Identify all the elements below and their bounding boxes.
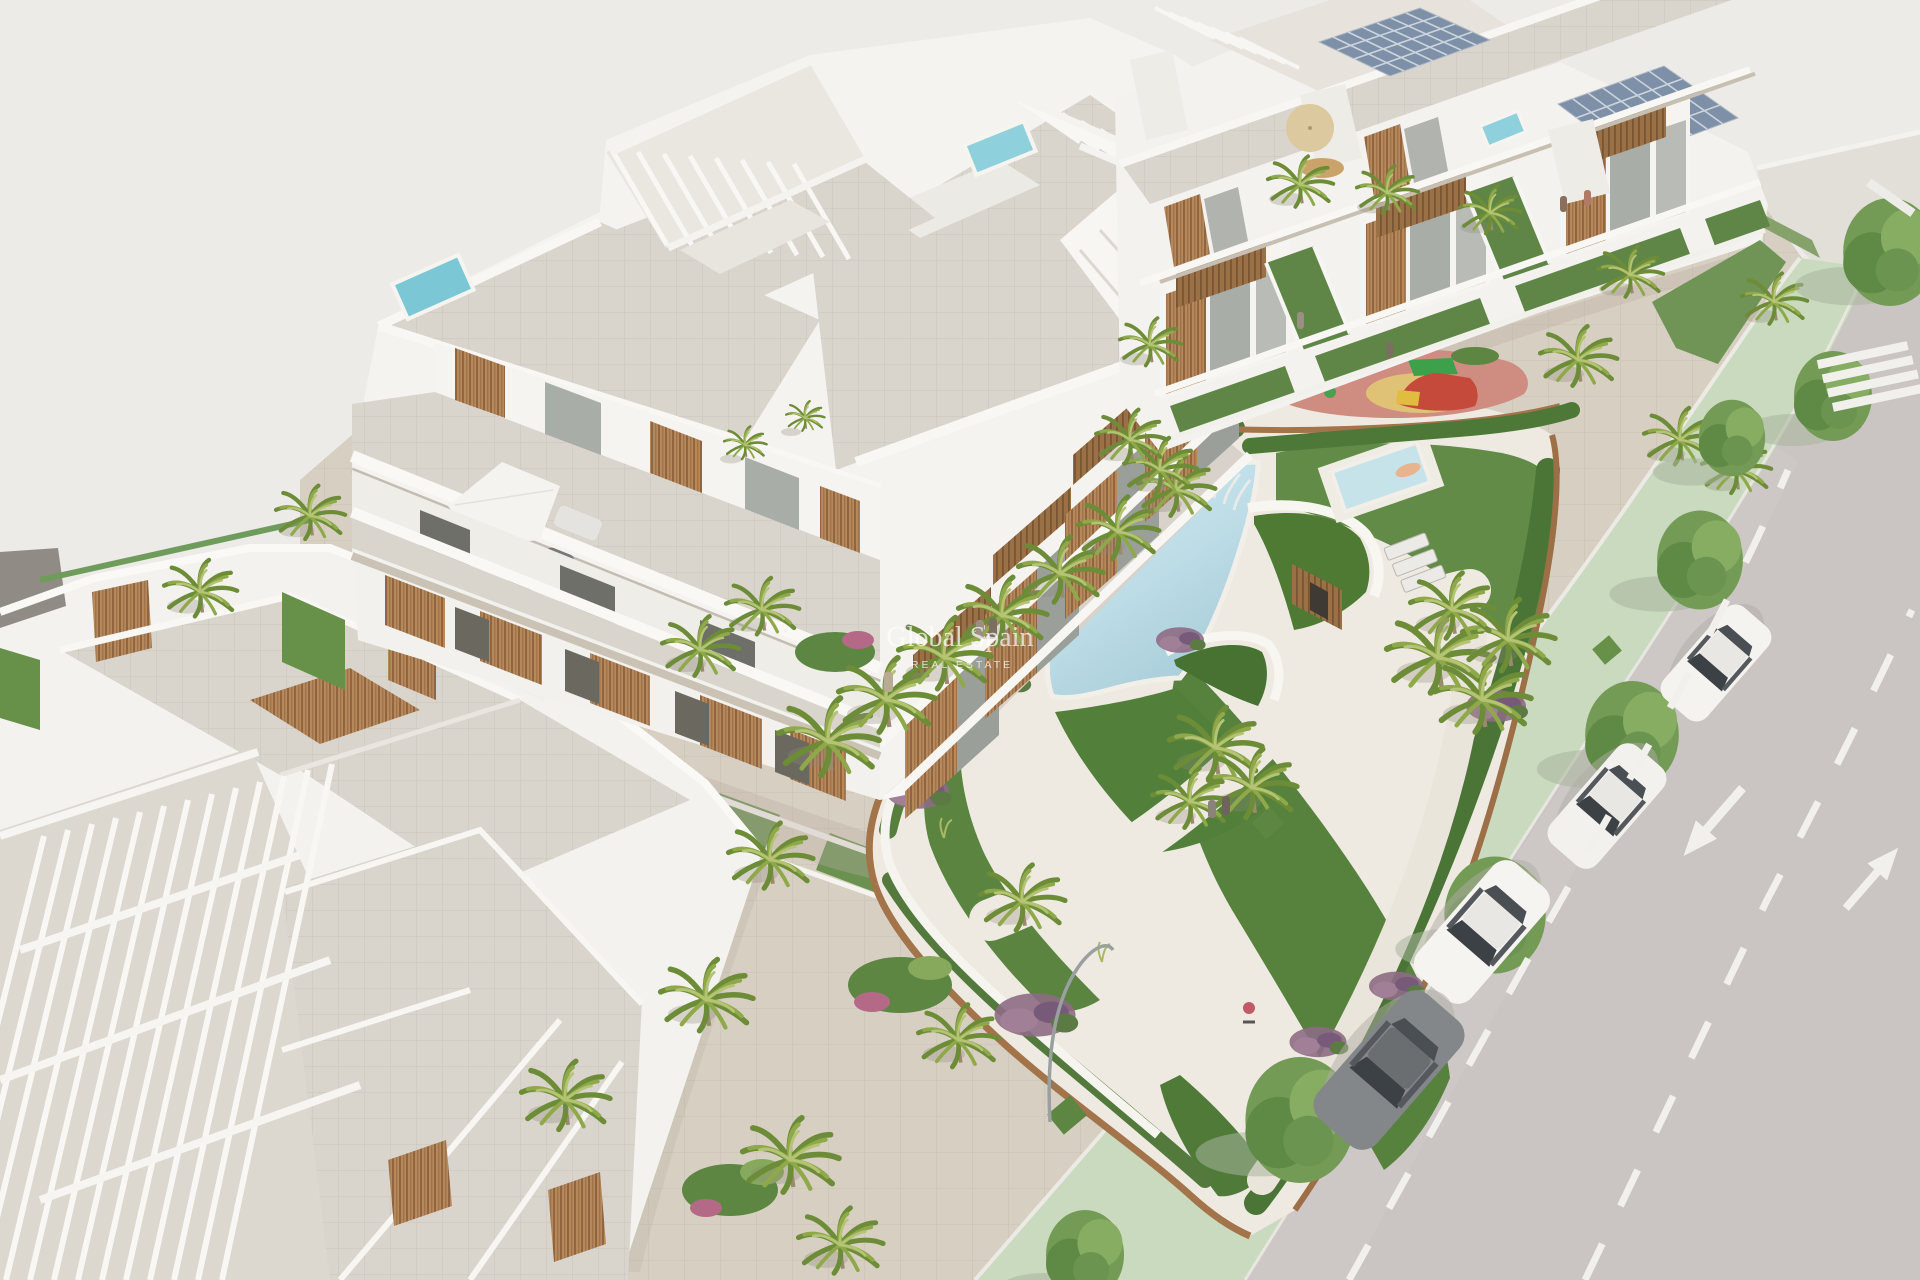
svg-text:Global Spain: Global Spain	[887, 622, 1034, 653]
svg-text:REAL ESTATE: REAL ESTATE	[911, 659, 1013, 671]
